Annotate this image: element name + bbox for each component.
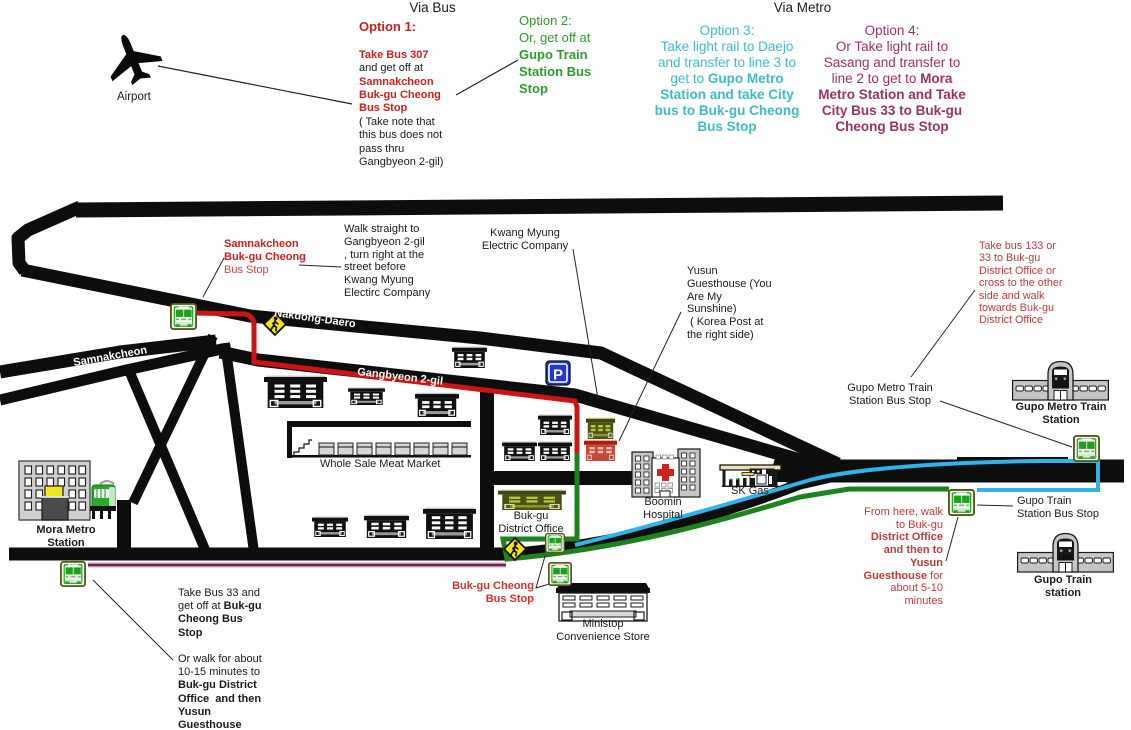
svg-text:P: P xyxy=(553,367,563,384)
